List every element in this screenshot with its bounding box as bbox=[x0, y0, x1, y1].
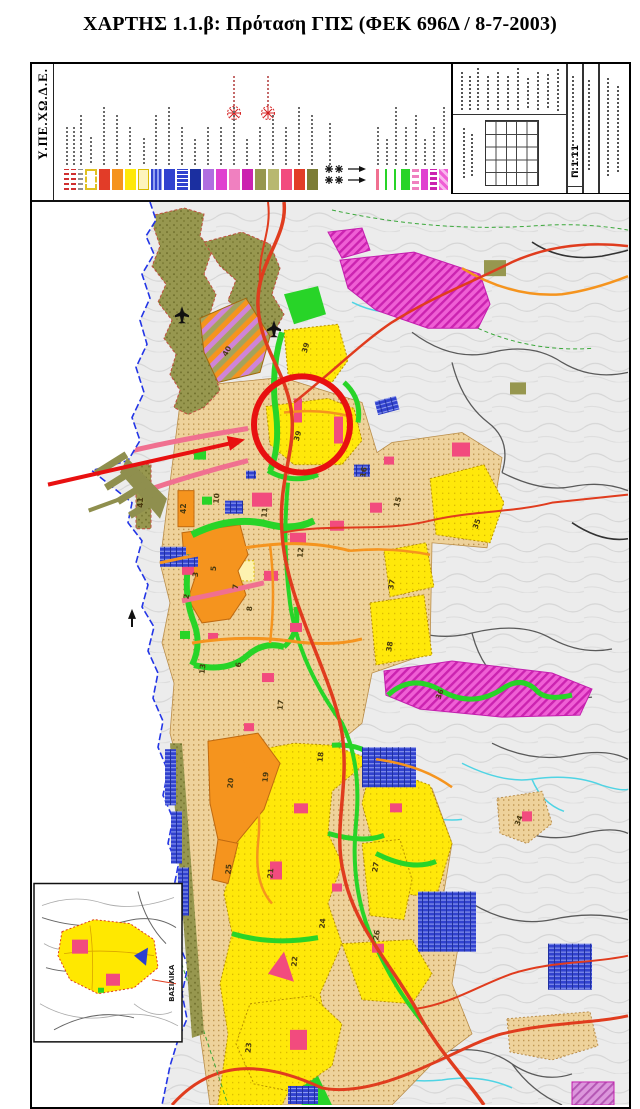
map-legend bbox=[55, 64, 457, 200]
legend-swatch bbox=[242, 169, 253, 190]
legend-swatch bbox=[229, 169, 240, 190]
legend-swatch bbox=[125, 169, 136, 190]
legend-swatch bbox=[401, 169, 410, 190]
title-block-divider bbox=[566, 64, 568, 193]
legend-swatch bbox=[203, 169, 214, 190]
legend-swatch bbox=[71, 169, 76, 190]
district-label: 17 bbox=[276, 699, 286, 710]
title-block-index-grid bbox=[485, 120, 539, 186]
title-block-text-marks bbox=[547, 74, 549, 108]
legend-swatch bbox=[190, 169, 201, 190]
title-block-text-marks bbox=[557, 69, 559, 111]
title-block-text-marks bbox=[517, 68, 519, 110]
legend-swatch bbox=[216, 169, 227, 190]
title-block-text-marks bbox=[477, 68, 479, 110]
district-label: 23 bbox=[244, 1042, 254, 1053]
district-label: 37 bbox=[386, 578, 397, 590]
district-label: 25 bbox=[224, 864, 234, 875]
district-label: 22 bbox=[290, 956, 300, 967]
district-label: 7 bbox=[231, 584, 240, 590]
legend-swatch-row bbox=[63, 162, 449, 190]
title-block-text-marks bbox=[572, 74, 574, 174]
title-block-text-marks bbox=[487, 76, 489, 110]
district-label: 8 bbox=[245, 606, 254, 612]
district-label: 12 bbox=[296, 547, 306, 558]
district-label: 27 bbox=[370, 861, 381, 873]
title-block-text-marks bbox=[461, 70, 463, 110]
title-block-text-marks bbox=[527, 76, 529, 108]
district-label: 5 bbox=[209, 566, 218, 572]
title-block-text-marks bbox=[471, 132, 473, 176]
title-block-text-marks bbox=[617, 84, 619, 172]
drawing-title-block: Π.1.11 bbox=[451, 64, 629, 194]
district-label: 38 bbox=[384, 641, 395, 653]
district-label: 16 bbox=[358, 466, 369, 478]
map-body: 41 42 40 39 39 10 11 12 16 15 3 5 2 7 8 … bbox=[32, 202, 629, 1105]
title-block-divider bbox=[453, 114, 566, 115]
legend-swatch bbox=[412, 169, 419, 190]
legend-swatch bbox=[64, 169, 69, 190]
legend-strip: Υ.ΠΕ.ΧΩ.Δ.Ε. bbox=[32, 64, 629, 202]
legend-swatch bbox=[439, 169, 448, 190]
title-block-text-marks bbox=[507, 74, 509, 110]
legend-swatch bbox=[281, 169, 292, 190]
inset-label: ΒΑΣΙΛΙΚΑ bbox=[168, 964, 176, 1002]
title-block-divider bbox=[598, 64, 600, 193]
title-block-text-marks bbox=[537, 70, 539, 110]
title-block-text-marks bbox=[607, 76, 609, 176]
district-label: 11 bbox=[260, 507, 270, 518]
title-block-divider bbox=[566, 186, 582, 187]
legend-swatch bbox=[374, 169, 381, 190]
map-canvas: 41 42 40 39 39 10 11 12 16 15 3 5 2 7 8 … bbox=[32, 202, 629, 1105]
district-label: 10 bbox=[212, 493, 222, 504]
inset-map: ΒΑΣΙΛΙΚΑ bbox=[34, 884, 182, 1042]
title-block-text-marks bbox=[497, 70, 499, 110]
legend-black-symbols-icon bbox=[323, 162, 369, 190]
district-label: 6 bbox=[234, 662, 243, 668]
district-label: 19 bbox=[261, 771, 271, 782]
district-label: 18 bbox=[316, 751, 326, 762]
legend-swatch bbox=[430, 169, 437, 190]
legend-swatch bbox=[255, 169, 266, 190]
map-frame: Υ.ΠΕ.ΧΩ.Δ.Ε. bbox=[30, 62, 631, 1109]
district-label: 24 bbox=[318, 918, 328, 929]
legend-swatch bbox=[112, 169, 123, 190]
legend-swatch bbox=[138, 169, 149, 190]
legend-swatch bbox=[164, 169, 175, 190]
legend-swatch bbox=[421, 169, 428, 190]
legend-swatch bbox=[294, 169, 305, 190]
legend-swatch bbox=[78, 169, 83, 190]
legend-swatch bbox=[151, 169, 162, 190]
agency-vertical-label: Υ.ΠΕ.ΧΩ.Δ.Ε. bbox=[32, 64, 54, 200]
legend-swatch bbox=[392, 169, 399, 190]
title-block-divider bbox=[582, 64, 584, 193]
legend-swatch bbox=[307, 169, 318, 190]
legend-swatch bbox=[383, 169, 390, 190]
district-label: 20 bbox=[226, 777, 236, 788]
legend-swatch bbox=[268, 169, 279, 190]
district-label: 21 bbox=[266, 868, 276, 879]
agency-label-text: Υ.ΠΕ.ΧΩ.Δ.Ε. bbox=[35, 68, 51, 160]
title-block-text-marks bbox=[588, 78, 590, 170]
page-title: ΧΑΡΤΗΣ 1.1.β: Πρόταση ΓΠΣ (ΦΕΚ 696Δ / 8-… bbox=[0, 13, 640, 36]
legend-swatch bbox=[99, 169, 110, 190]
district-label: 26 bbox=[371, 929, 382, 941]
district-label: 41 bbox=[136, 497, 145, 507]
legend-swatch bbox=[177, 169, 188, 190]
page: { "document": { "title": "ΧΑΡΤΗΣ 1.1.β: … bbox=[0, 0, 640, 1109]
title-block-text-marks bbox=[469, 74, 471, 110]
legend-swatch bbox=[85, 169, 97, 190]
district-label: 42 bbox=[179, 503, 188, 513]
district-label: 3 bbox=[191, 572, 200, 578]
title-block-text-marks bbox=[463, 126, 465, 178]
district-label: 13 bbox=[198, 663, 208, 674]
